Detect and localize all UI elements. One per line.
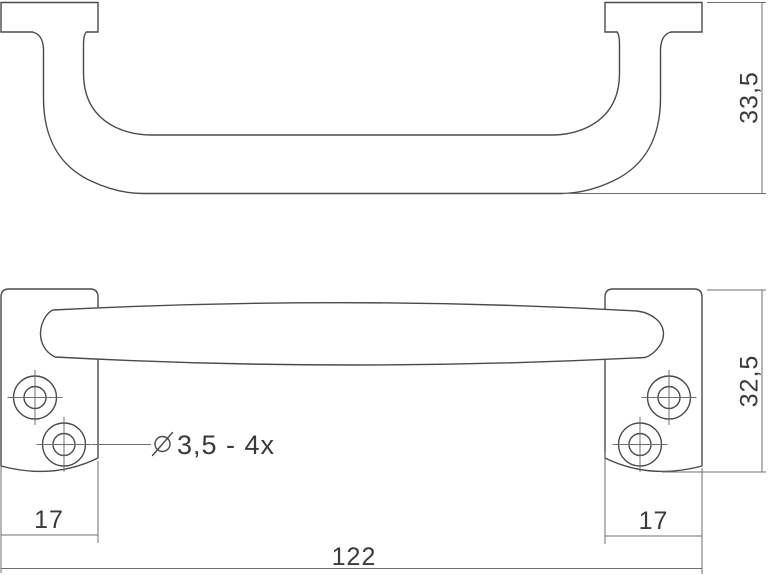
dim-text-32-5: 32,5 (736, 355, 764, 408)
diameter-symbol-icon (153, 433, 173, 456)
screw-holes (8, 370, 697, 472)
top-view-left-foot-plate (1, 3, 98, 33)
dimension-lines (1, 3, 766, 575)
hole-crosshairs (8, 370, 697, 472)
dim-text-33-5: 33,5 (736, 71, 764, 124)
hole-note-text: 3,5 - 4x (177, 430, 275, 460)
top-view-right-foot-plate (605, 3, 702, 33)
top-view-outer-profile (33, 32, 672, 194)
technical-drawing-page: 33,5 32,5 17 17 122 3,5 - 4x (0, 0, 768, 575)
dim-text-17-left: 17 (34, 506, 64, 534)
dim-text-122: 122 (332, 543, 377, 571)
top-view (1, 3, 702, 194)
top-view-inner-profile (84, 32, 620, 135)
front-view-grip-bar (41, 303, 664, 365)
handle-technical-drawing: 33,5 32,5 17 17 122 3,5 - 4x (0, 0, 768, 575)
dim-text-17-right: 17 (639, 507, 669, 535)
